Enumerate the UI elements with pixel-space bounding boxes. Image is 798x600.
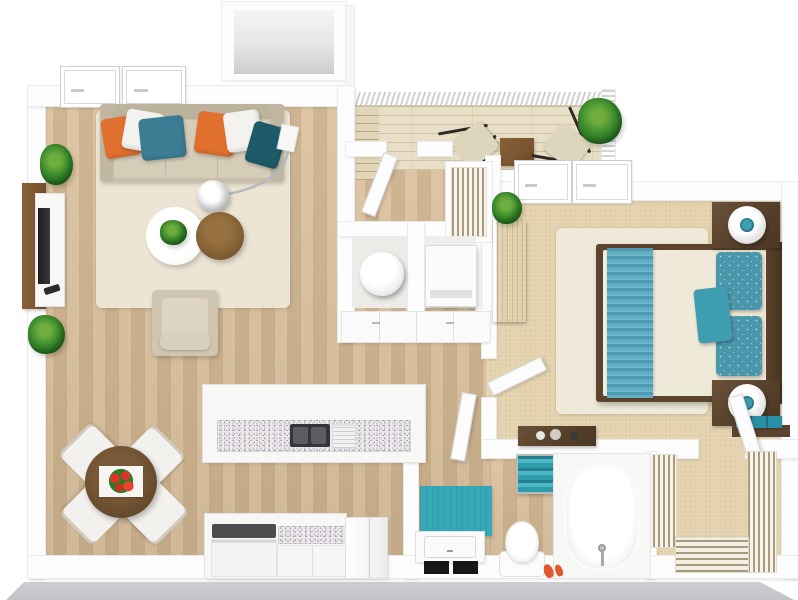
laundry-appliance — [426, 246, 476, 306]
armchair-cushion — [160, 334, 210, 350]
vanity-faucet — [447, 550, 453, 552]
towel-shelf — [516, 454, 558, 494]
bathtub-faucet — [601, 552, 604, 566]
sink-basin-left — [293, 427, 308, 444]
exterior-wall-stub — [346, 6, 354, 88]
closet-shelving-right — [748, 452, 776, 572]
living-plant-top — [40, 144, 73, 185]
hall-closet-frame — [446, 162, 492, 242]
water-heater — [360, 252, 404, 296]
ground-shadow — [6, 582, 794, 600]
bed-throw-teal — [607, 248, 653, 398]
window-living-1 — [60, 66, 120, 108]
sofa-pillow-teal-1 — [138, 115, 187, 161]
cabinet-handle-1 — [372, 322, 380, 324]
appliance-top-line — [430, 290, 472, 298]
exterior-niche — [222, 2, 346, 80]
bath-mat-teal — [420, 486, 492, 536]
table-lamp-top-center — [740, 218, 754, 232]
wall-hall-top-left — [346, 142, 386, 156]
bathtub-drain — [598, 544, 606, 552]
toilet-bowl — [506, 522, 538, 562]
armchair — [152, 290, 218, 356]
refrigerator — [346, 518, 387, 578]
balcony-railing-top — [352, 88, 614, 105]
bedroom-bench — [518, 426, 596, 446]
bench-decor-1 — [536, 431, 545, 440]
coffee-table-plant — [160, 220, 187, 245]
utility-cabinet-fronts — [342, 312, 490, 342]
dining-flowers — [106, 468, 136, 494]
vanity-drawer-right — [453, 561, 478, 574]
living-plant-bottom — [28, 315, 65, 354]
window-bedroom-2 — [572, 160, 632, 204]
hall-closet-louver-door — [452, 168, 486, 236]
dresser-plant — [492, 192, 522, 224]
counter-right-of-stove — [278, 526, 346, 544]
closet-shelving-bottom — [676, 538, 748, 572]
window-bedroom-1 — [514, 160, 572, 204]
vanity-sink-outline — [424, 536, 476, 558]
stove-cooktop — [212, 524, 276, 538]
vanity-drawer-left — [424, 561, 449, 574]
bathroom-vanity — [416, 532, 484, 562]
niche-floor — [234, 10, 334, 74]
balcony-plant — [578, 98, 622, 144]
dish-rack — [333, 426, 355, 448]
cabinet-handle-2 — [446, 322, 454, 324]
wall-right-exterior — [782, 182, 798, 578]
bench-decor-2 — [550, 429, 561, 440]
floor-plan-canvas — [0, 0, 798, 600]
window-living-2 — [122, 66, 186, 108]
bedroom-dresser — [492, 220, 526, 322]
sink-basin-right — [311, 427, 326, 444]
bench-decor-3 — [570, 432, 578, 440]
bed-accent-pillow — [693, 286, 732, 343]
coffee-table-brown — [196, 212, 244, 260]
wall-hall-top-right — [418, 142, 452, 156]
closet-shelving-left — [648, 455, 676, 547]
arc-lamp-bulb — [206, 189, 220, 203]
railing-balusters — [352, 92, 614, 105]
tv-screen — [38, 208, 50, 284]
stove-front — [212, 540, 276, 576]
cabinet-fronts — [278, 546, 346, 576]
wall-utility-divider — [408, 222, 424, 322]
kitchen-sink — [290, 424, 330, 447]
